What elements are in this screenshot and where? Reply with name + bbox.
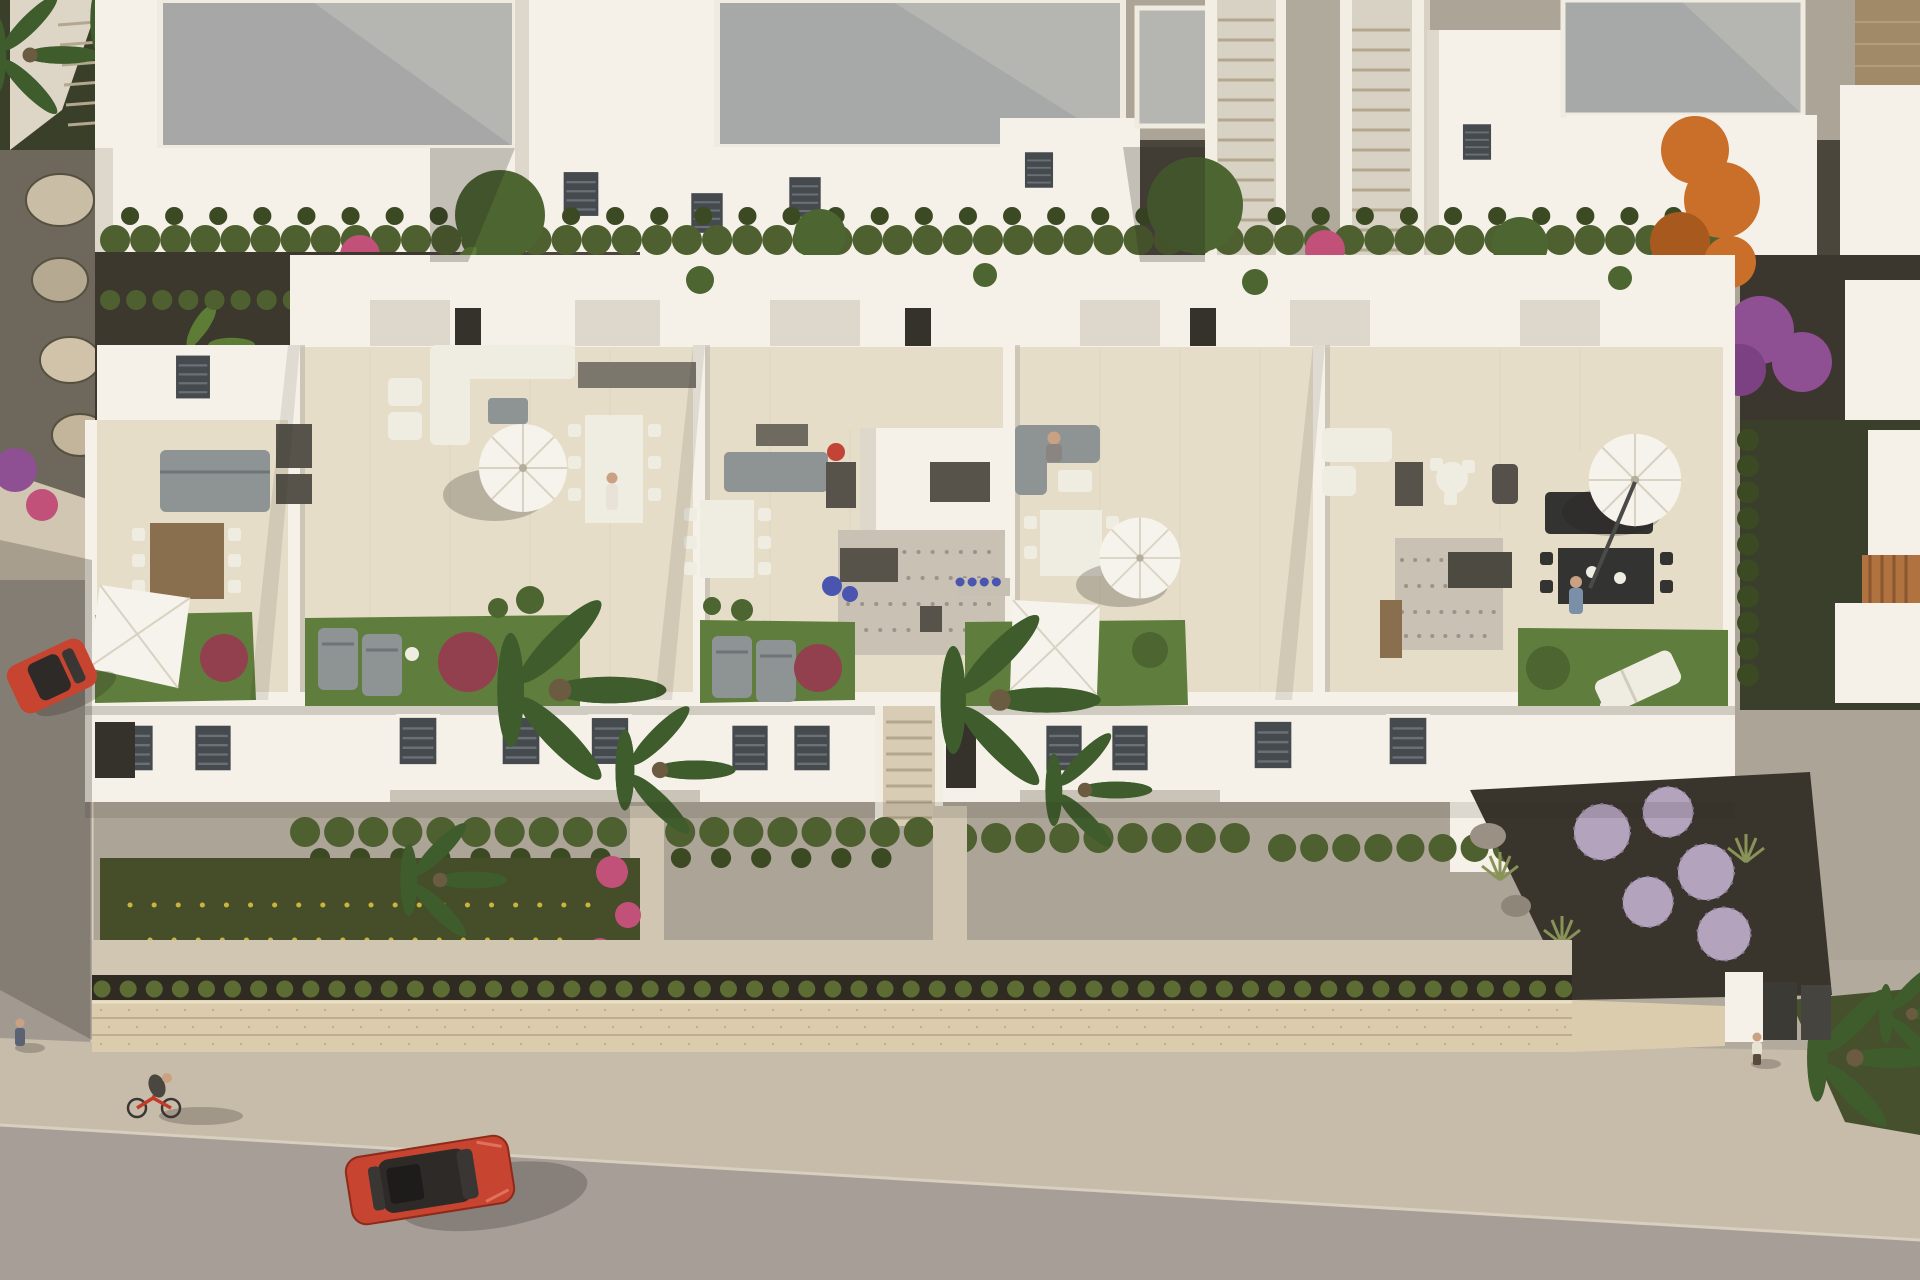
aerial-render <box>0 0 1920 1280</box>
dining-table <box>150 523 224 599</box>
gate-pillar <box>1725 972 1763 1042</box>
standing-person <box>1569 576 1583 614</box>
window <box>396 714 440 768</box>
sun-lounger <box>362 634 402 696</box>
scene-canvas <box>0 0 1920 1280</box>
bench-box <box>1395 462 1423 506</box>
gate-panel <box>1763 982 1797 1040</box>
round-parasol <box>479 424 567 512</box>
lavender-ball <box>1697 907 1750 960</box>
window <box>729 722 772 774</box>
tilted-parasol <box>1589 434 1681 526</box>
window <box>1022 149 1056 190</box>
window <box>1251 718 1295 772</box>
window <box>791 722 834 774</box>
blue-flowers <box>822 576 842 596</box>
sun-lounger <box>756 640 796 702</box>
gate-panel <box>1801 985 1831 1040</box>
window <box>1386 714 1430 768</box>
bougainvillea <box>596 856 628 888</box>
small-tree <box>1132 632 1168 668</box>
lounge-chair <box>1492 464 1518 504</box>
window <box>172 352 213 402</box>
sun-lounger <box>712 636 752 698</box>
right-edge-buildings <box>1740 420 1920 710</box>
coffee-table <box>488 398 528 424</box>
perimeter-wall <box>92 940 1831 1052</box>
lavender-ball <box>1678 844 1734 900</box>
terrace-person <box>606 473 618 511</box>
small-tree <box>1526 646 1570 690</box>
ac-unit <box>840 548 898 582</box>
red-bush <box>438 632 498 692</box>
cabinet <box>826 462 856 508</box>
sofa <box>160 450 270 512</box>
rock <box>1470 823 1506 849</box>
rear-house-e <box>1427 0 1817 262</box>
rock <box>1501 895 1531 917</box>
stone-wall <box>92 1000 1572 1052</box>
armchair <box>388 412 422 440</box>
red-bush <box>794 644 842 692</box>
armchair <box>388 378 422 406</box>
seated-person <box>1046 432 1062 463</box>
ac-unit <box>930 462 990 502</box>
side-table <box>405 647 419 661</box>
pink-tree <box>200 634 248 682</box>
garage-door <box>95 722 135 778</box>
window <box>192 722 235 774</box>
sideboard <box>756 424 808 446</box>
entry-walkway <box>933 806 967 946</box>
window <box>1109 722 1152 774</box>
townhouse-block <box>85 255 1920 872</box>
dining-table <box>700 500 754 578</box>
sofa <box>724 452 828 492</box>
terrace-back-structures <box>290 255 1735 347</box>
window <box>1460 121 1494 162</box>
flower-pot <box>827 443 845 461</box>
sun-lounger <box>318 628 358 690</box>
ac-unit <box>1448 552 1512 588</box>
dining-table <box>1040 510 1102 576</box>
sofa <box>1322 428 1392 462</box>
sideboard <box>578 362 696 388</box>
lavender-ball <box>1623 877 1673 927</box>
round-parasol <box>1100 518 1181 599</box>
wood-panel <box>1380 600 1402 658</box>
coffee-table <box>1058 470 1092 492</box>
